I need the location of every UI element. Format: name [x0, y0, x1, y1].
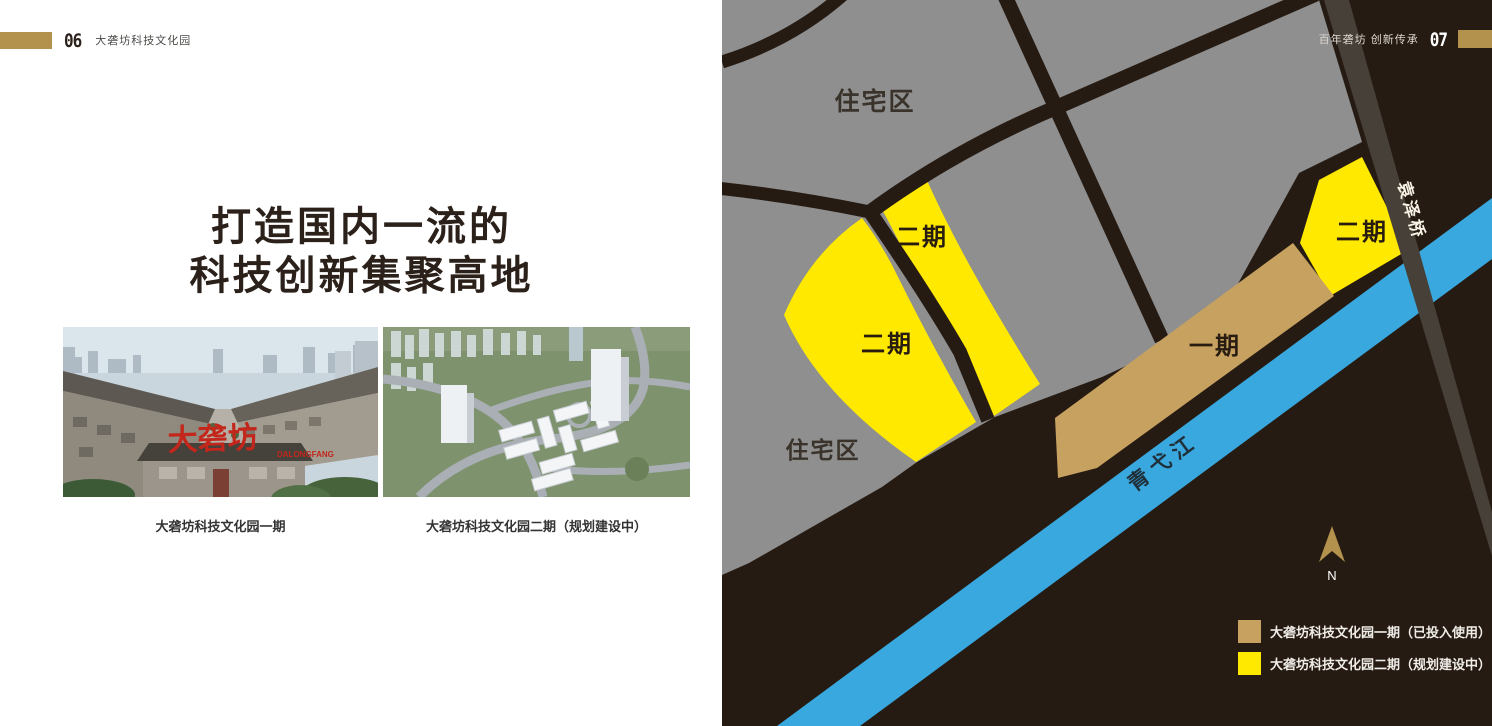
photo2-distant-tower	[569, 327, 583, 361]
photo-phase2-caption: 大砻坊科技文化园二期（规划建设中）	[383, 516, 690, 535]
map-legend: 大砻坊科技文化园一期（已投入使用） 大砻坊科技文化园二期（规划建设中）	[1238, 620, 1491, 675]
headline-line-2: 科技创新集聚高地	[48, 252, 675, 301]
legend-label-phase2: 大砻坊科技文化园二期（规划建设中）	[1270, 657, 1491, 672]
photo1-sign-subtext: DALONGFANG	[277, 450, 334, 459]
headline-line-1: 打造国内一流的	[48, 203, 675, 252]
photo2-tower-2	[441, 385, 467, 443]
phase2-right-label: 二期	[1336, 219, 1388, 246]
page-number: 06	[64, 29, 81, 51]
phase2-left-upper-label: 二期	[896, 224, 948, 251]
photo1-door	[213, 469, 229, 497]
photo-phase1: 大砻坊 DALONGFANG 大砻坊科技文化园一期	[63, 327, 378, 535]
photo-phase1-caption: 大砻坊科技文化园一期	[63, 516, 378, 535]
photo-phase1-image: 大砻坊 DALONGFANG	[63, 327, 378, 497]
header-gold-bar	[1458, 30, 1492, 48]
legend-label-phase1: 大砻坊科技文化园一期（已投入使用）	[1270, 625, 1491, 640]
photo2-tower-1-side	[621, 357, 629, 421]
photo2-tower-1	[591, 349, 621, 421]
phase1-label: 一期	[1189, 333, 1241, 360]
residential-bottom-label: 住宅区	[786, 437, 861, 463]
photo-phase2: 大砻坊科技文化园二期（规划建设中）	[383, 327, 690, 535]
header-gold-bar	[0, 32, 52, 49]
document-title: 大砻坊科技文化园	[95, 32, 191, 48]
right-page: 住宅区 住宅区 二期 二期 二期 一期 青弋江 袁泽桥 N 大砻坊科技文化园一期…	[722, 0, 1492, 726]
residential-top-label: 住宅区	[834, 87, 915, 116]
document-subtitle: 百年砻坊 创新传承	[1319, 31, 1419, 47]
legend-swatch-phase1	[1238, 620, 1261, 643]
page-number: 07	[1430, 28, 1447, 50]
brochure-spread: 06 大砻坊科技文化园 打造国内一流的 科技创新集聚高地	[0, 0, 1492, 726]
photo2-green-patch	[625, 457, 649, 481]
legend-swatch-phase2	[1238, 652, 1261, 675]
phase2-left-lower-label: 二期	[861, 331, 913, 358]
headline: 打造国内一流的 科技创新集聚高地	[48, 203, 675, 301]
right-page-header: 百年砻坊 创新传承 07	[1319, 30, 1492, 48]
photo2-tower-2-side	[467, 393, 474, 443]
left-page-header: 06 大砻坊科技文化园	[0, 31, 191, 49]
north-arrow-icon	[1319, 526, 1345, 562]
photo1-sign-text: 大砻坊	[167, 420, 258, 457]
left-page: 06 大砻坊科技文化园 打造国内一流的 科技创新集聚高地	[0, 0, 722, 726]
site-map: 住宅区 住宅区 二期 二期 二期 一期 青弋江 袁泽桥 N 大砻坊科技文化园一期…	[722, 0, 1492, 726]
north-label: N	[1327, 568, 1336, 583]
photo-phase2-image	[383, 327, 690, 497]
